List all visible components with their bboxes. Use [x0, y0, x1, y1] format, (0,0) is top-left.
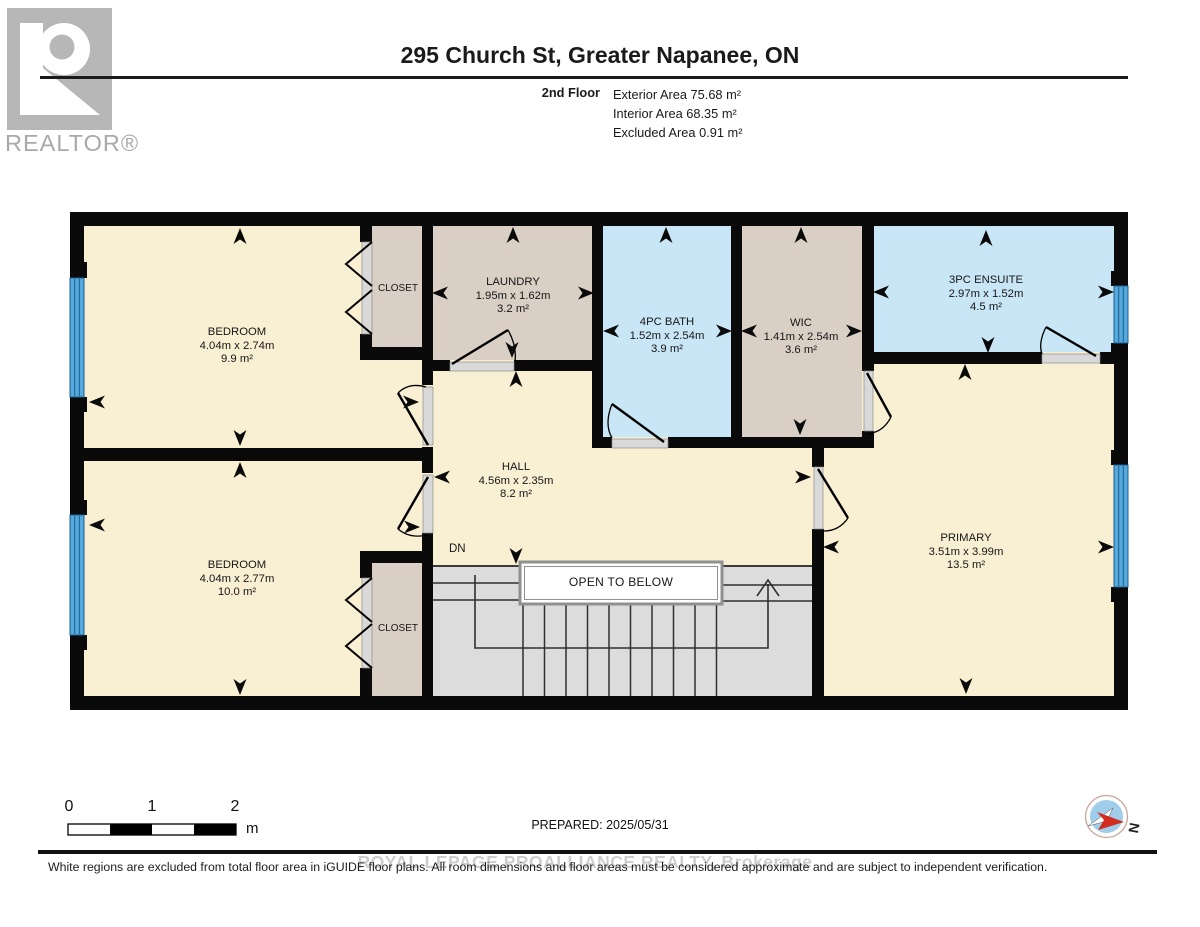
room-label-hall: HALL4.56m x 2.35m8.2 m² [479, 461, 554, 502]
door-gap-laundry [450, 362, 514, 371]
door-gap-bedroom-top [423, 387, 433, 445]
floorplan-page: REALTOR® 295 Church St, Greater Napanee,… [0, 0, 1200, 927]
open-to-below-label: OPEN TO BELOW [569, 575, 673, 589]
scale-tick-2: 2 [231, 798, 240, 816]
stairs-down-label: DN [449, 543, 466, 555]
room-label-wic: WIC1.41m x 2.54m3.6 m² [764, 317, 839, 358]
room-label-primary: PRIMARY3.51m x 3.99m13.5 m² [929, 532, 1004, 573]
room-label-laundry: LAUNDRY1.95m x 1.62m3.2 m² [476, 276, 551, 317]
room-label-ensuite: 3PC ENSUITE2.97m x 1.52m4.5 m² [949, 274, 1024, 315]
room-label-closet-top: CLOSET [378, 282, 418, 296]
disclaimer-text: White regions are excluded from total fl… [48, 860, 1047, 874]
room-label-bedroom-top: BEDROOM4.04m x 2.74m9.9 m² [200, 326, 275, 367]
window-primary [1114, 465, 1128, 587]
door-gap-closet-top [362, 242, 372, 334]
scale-tick-0: 0 [65, 798, 74, 816]
room-label-bath: 4PC BATH1.52m x 2.54m3.9 m² [630, 316, 705, 357]
scale-tick-1: 1 [148, 798, 157, 816]
room-label-bedroom-bottom: BEDROOM4.04m x 2.77m10.0 m² [200, 559, 275, 600]
room-label-closet-bottom: CLOSET [378, 622, 418, 636]
prepared-date: PREPARED: 2025/05/31 [0, 818, 1200, 832]
floor-plan-drawing: N [0, 0, 1200, 927]
door-gap-bath [612, 439, 668, 448]
window-bedroom-bottom [70, 515, 84, 635]
door-gap-closet-bottom [362, 578, 372, 668]
window-bedroom-top [70, 278, 84, 397]
footer-divider [38, 850, 1157, 854]
window-ensuite [1114, 286, 1128, 343]
door-gap-ensuite [1042, 354, 1100, 363]
